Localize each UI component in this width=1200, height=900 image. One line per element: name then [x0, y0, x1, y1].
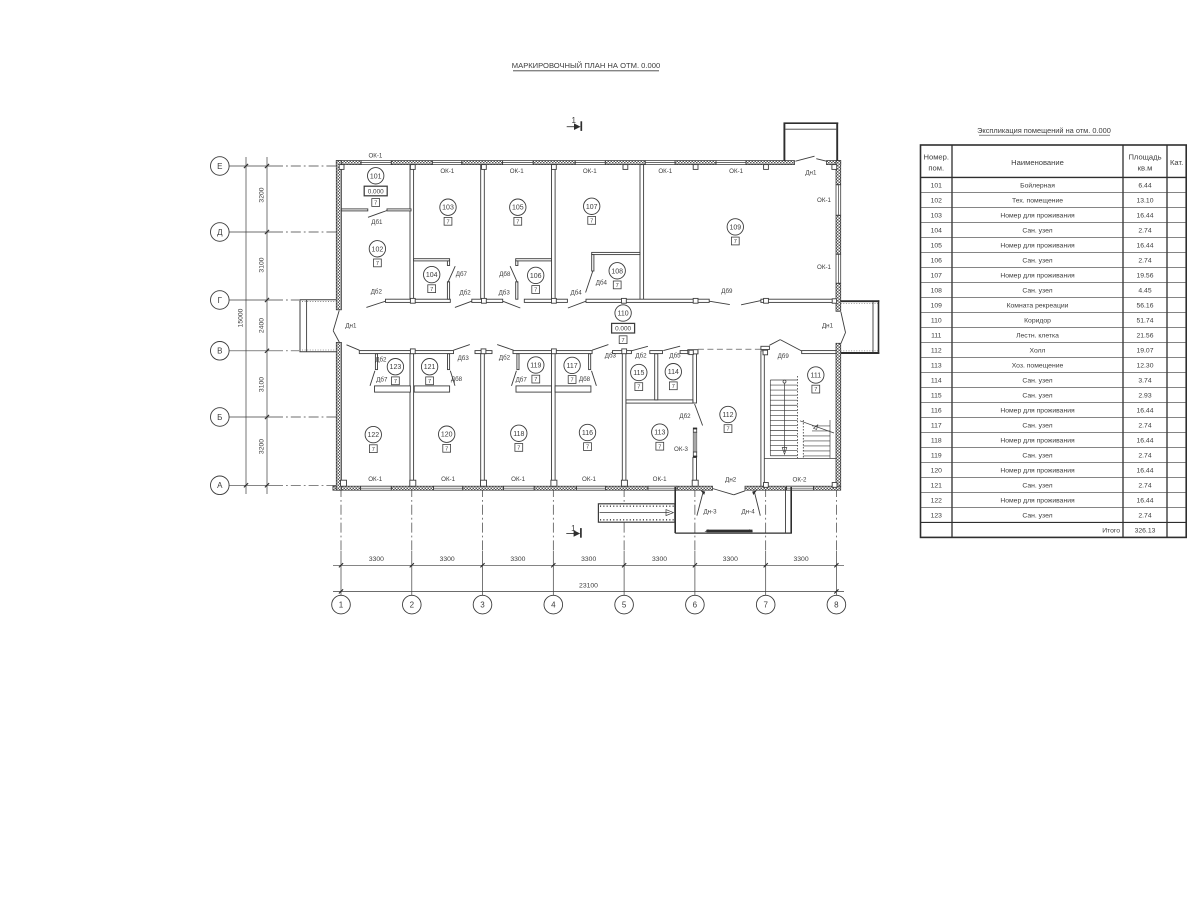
svg-text:7: 7 [726, 427, 729, 433]
svg-text:Номер для проживания: Номер для проживания [1000, 438, 1075, 445]
svg-text:7: 7 [672, 384, 675, 390]
svg-text:16.44: 16.44 [1136, 468, 1153, 475]
svg-text:122: 122 [931, 498, 943, 505]
svg-text:7: 7 [534, 288, 537, 294]
svg-text:Наименование: Наименование [1011, 158, 1064, 167]
svg-text:Б: Б [217, 413, 222, 422]
svg-text:13.10: 13.10 [1136, 198, 1153, 205]
svg-text:пом.: пом. [928, 164, 944, 173]
svg-text:120: 120 [931, 468, 943, 475]
svg-text:2.74: 2.74 [1138, 423, 1151, 430]
svg-text:3100: 3100 [259, 377, 266, 392]
svg-text:Дб2: Дб2 [679, 413, 691, 420]
svg-text:6: 6 [693, 601, 698, 610]
svg-text:23100: 23100 [579, 582, 598, 589]
svg-text:120: 120 [441, 432, 453, 439]
svg-text:110: 110 [931, 318, 942, 325]
svg-text:16.44: 16.44 [1136, 498, 1153, 505]
svg-text:110: 110 [618, 311, 629, 318]
svg-text:Номер.: Номер. [924, 153, 949, 162]
svg-text:ОК-3: ОК-3 [674, 446, 688, 453]
svg-text:Дб2: Дб2 [499, 354, 511, 361]
svg-text:ОК-1: ОК-1 [729, 168, 743, 175]
svg-text:Дн-3: Дн-3 [703, 509, 717, 516]
svg-text:Дб1: Дб1 [371, 219, 383, 226]
svg-text:Сан. узел: Сан. узел [1022, 258, 1052, 265]
svg-text:Номер для проживания: Номер для проживания [1000, 213, 1075, 220]
svg-text:Дб8: Дб8 [499, 271, 511, 278]
svg-text:Тех. помещение: Тех. помещение [1012, 198, 1063, 205]
svg-text:7: 7 [430, 287, 433, 293]
svg-text:Дб4: Дб4 [596, 280, 608, 287]
svg-text:Комната рекреации: Комната рекреации [1007, 303, 1069, 310]
svg-text:105: 105 [931, 243, 943, 250]
svg-text:121: 121 [931, 483, 943, 490]
svg-text:Дб7: Дб7 [516, 377, 528, 384]
svg-text:Дб3: Дб3 [605, 353, 617, 360]
svg-text:122: 122 [367, 432, 379, 439]
svg-text:Сан. узел: Сан. узел [1022, 228, 1052, 235]
svg-text:Номер для проживания: Номер для проживания [1000, 498, 1075, 505]
svg-text:118: 118 [513, 431, 524, 438]
svg-text:ОК-1: ОК-1 [368, 476, 382, 483]
svg-text:51.74: 51.74 [1136, 318, 1153, 325]
svg-text:111: 111 [931, 333, 942, 340]
svg-text:Дб4: Дб4 [571, 290, 583, 297]
svg-text:Сан. узел: Сан. узел [1022, 483, 1052, 490]
svg-text:101: 101 [931, 183, 943, 190]
svg-text:ОК-1: ОК-1 [817, 197, 831, 204]
svg-text:21.56: 21.56 [1136, 333, 1153, 340]
svg-text:2.74: 2.74 [1138, 513, 1151, 520]
svg-text:3200: 3200 [259, 439, 266, 454]
svg-text:0.000: 0.000 [615, 326, 631, 333]
svg-text:7: 7 [586, 445, 589, 451]
svg-text:Дн2: Дн2 [725, 477, 737, 484]
svg-text:115: 115 [931, 393, 942, 400]
svg-text:Итого: Итого [1102, 528, 1120, 535]
svg-text:116: 116 [582, 430, 593, 437]
svg-text:7: 7 [376, 261, 379, 267]
svg-text:7: 7 [374, 201, 377, 207]
svg-text:7: 7 [394, 379, 397, 385]
svg-text:8: 8 [834, 601, 839, 610]
svg-text:103: 103 [442, 205, 454, 212]
svg-text:3300: 3300 [793, 556, 808, 563]
svg-text:Номер для проживания: Номер для проживания [1000, 408, 1075, 415]
svg-text:123: 123 [390, 364, 402, 371]
svg-text:117: 117 [931, 423, 942, 430]
svg-text:123: 123 [931, 513, 943, 520]
svg-text:117: 117 [567, 363, 578, 370]
svg-text:16.44: 16.44 [1136, 408, 1153, 415]
svg-text:121: 121 [424, 364, 436, 371]
svg-text:104: 104 [426, 272, 438, 279]
svg-text:114: 114 [931, 378, 942, 385]
svg-text:Дб8: Дб8 [579, 376, 591, 383]
svg-text:Дб3: Дб3 [458, 355, 470, 362]
svg-text:Холл: Холл [1029, 348, 1045, 355]
svg-text:114: 114 [668, 369, 679, 376]
svg-text:3.74: 3.74 [1138, 378, 1151, 385]
svg-text:105: 105 [512, 205, 524, 212]
svg-text:16.44: 16.44 [1136, 438, 1153, 445]
svg-text:113: 113 [931, 363, 942, 370]
svg-text:Д: Д [217, 228, 223, 237]
svg-text:Номер для проживания: Номер для проживания [1000, 273, 1075, 280]
svg-text:ОК-2: ОК-2 [793, 477, 807, 484]
svg-text:2400: 2400 [259, 318, 266, 333]
svg-text:101: 101 [370, 173, 382, 180]
svg-text:Сан. узел: Сан. узел [1022, 513, 1052, 520]
svg-text:Дб2: Дб2 [635, 353, 647, 360]
svg-text:3300: 3300 [723, 556, 738, 563]
svg-text:16.44: 16.44 [1136, 213, 1153, 220]
svg-text:Дб7: Дб7 [456, 271, 468, 278]
svg-text:2: 2 [410, 601, 415, 610]
svg-text:В: В [217, 347, 222, 356]
svg-text:7: 7 [763, 601, 768, 610]
svg-text:7: 7 [571, 378, 574, 384]
svg-text:Дб8: Дб8 [451, 376, 463, 383]
svg-text:Кат.: Кат. [1170, 158, 1183, 167]
svg-text:ОК-1: ОК-1 [658, 168, 672, 175]
svg-text:Дн1: Дн1 [805, 170, 817, 177]
svg-text:Лестн. клетка: Лестн. клетка [1016, 333, 1059, 340]
svg-text:Сан. узел: Сан. узел [1022, 423, 1052, 430]
svg-text:7: 7 [516, 219, 519, 225]
svg-text:А: А [217, 481, 223, 490]
svg-text:1: 1 [571, 116, 576, 125]
svg-text:119: 119 [530, 363, 541, 370]
svg-text:7: 7 [616, 283, 619, 289]
svg-text:104: 104 [931, 228, 943, 235]
svg-text:ОК-1: ОК-1 [653, 476, 667, 483]
svg-text:7: 7 [517, 446, 520, 452]
svg-text:102: 102 [931, 198, 943, 205]
svg-text:Дн-4: Дн-4 [742, 509, 756, 516]
svg-text:4: 4 [551, 601, 556, 610]
svg-text:Сан. узел: Сан. узел [1022, 393, 1052, 400]
svg-text:3300: 3300 [369, 556, 384, 563]
svg-text:103: 103 [931, 213, 943, 220]
svg-text:Площадь: Площадь [1128, 153, 1161, 162]
svg-text:112: 112 [722, 412, 733, 419]
svg-text:19.07: 19.07 [1136, 348, 1153, 355]
svg-text:Номер для проживания: Номер для проживания [1000, 243, 1075, 250]
svg-text:3200: 3200 [259, 187, 266, 202]
svg-text:1: 1 [339, 601, 344, 610]
svg-text:МАРКИРОВОЧНЫЙ ПЛАН НА ОТМ. 0.0: МАРКИРОВОЧНЫЙ ПЛАН НА ОТМ. 0.000 [512, 61, 660, 70]
svg-text:7: 7 [428, 379, 431, 385]
svg-text:Дн1: Дн1 [345, 323, 357, 330]
svg-text:Сан. узел: Сан. узел [1022, 378, 1052, 385]
svg-text:56.16: 56.16 [1136, 303, 1153, 310]
svg-text:ОК-1: ОК-1 [441, 476, 455, 483]
svg-text:2.74: 2.74 [1138, 228, 1151, 235]
svg-text:Дб7: Дб7 [376, 377, 388, 384]
svg-text:Г: Г [218, 296, 223, 305]
svg-text:108: 108 [611, 268, 623, 275]
svg-text:Дб5: Дб5 [669, 353, 681, 360]
svg-text:116: 116 [931, 408, 942, 415]
svg-text:7: 7 [622, 338, 625, 344]
svg-text:Е: Е [217, 162, 222, 171]
svg-text:107: 107 [586, 204, 598, 211]
svg-text:Дб2: Дб2 [375, 356, 387, 363]
svg-text:7: 7 [372, 447, 375, 453]
svg-text:Дб2: Дб2 [371, 289, 383, 296]
svg-text:Дб9: Дб9 [778, 353, 790, 360]
svg-text:119: 119 [931, 453, 942, 460]
svg-text:0.000: 0.000 [368, 188, 384, 195]
svg-text:ОК-1: ОК-1 [368, 152, 382, 159]
svg-text:7: 7 [814, 387, 817, 393]
svg-text:7: 7 [590, 219, 593, 225]
svg-text:Дн1: Дн1 [822, 323, 834, 330]
svg-text:2.74: 2.74 [1138, 258, 1151, 265]
svg-text:106: 106 [530, 273, 542, 280]
svg-text:ОК-1: ОК-1 [583, 168, 597, 175]
svg-text:Номер для проживания: Номер для проживания [1000, 468, 1075, 475]
svg-text:106: 106 [931, 258, 943, 265]
svg-text:Сан. узел: Сан. узел [1022, 453, 1052, 460]
svg-text:118: 118 [931, 438, 942, 445]
svg-text:109: 109 [931, 303, 943, 310]
svg-text:Дб9: Дб9 [721, 288, 733, 295]
svg-text:7: 7 [445, 446, 448, 452]
svg-text:15000: 15000 [238, 308, 245, 327]
svg-text:Хоз. помещение: Хоз. помещение [1012, 363, 1064, 370]
svg-text:326.13: 326.13 [1135, 528, 1156, 535]
svg-text:7: 7 [658, 444, 661, 450]
svg-text:4.45: 4.45 [1138, 288, 1151, 295]
svg-text:ОК-1: ОК-1 [510, 168, 524, 175]
svg-text:113: 113 [654, 430, 665, 437]
svg-text:3300: 3300 [581, 556, 596, 563]
svg-text:ОК-1: ОК-1 [582, 476, 596, 483]
svg-text:ОК-1: ОК-1 [511, 476, 525, 483]
svg-text:107: 107 [931, 273, 943, 280]
svg-text:16.44: 16.44 [1136, 243, 1153, 250]
svg-text:7: 7 [734, 239, 737, 245]
svg-text:112: 112 [931, 348, 942, 355]
svg-text:Бойлерная: Бойлерная [1020, 182, 1055, 190]
svg-text:102: 102 [372, 246, 384, 253]
svg-text:19.56: 19.56 [1136, 273, 1153, 280]
svg-text:2.74: 2.74 [1138, 483, 1151, 490]
svg-text:108: 108 [931, 288, 943, 295]
svg-text:7: 7 [637, 385, 640, 391]
svg-text:6.44: 6.44 [1138, 183, 1151, 190]
svg-text:115: 115 [633, 370, 644, 377]
svg-text:2.74: 2.74 [1138, 453, 1151, 460]
svg-text:3: 3 [480, 601, 485, 610]
svg-text:Сан. узел: Сан. узел [1022, 288, 1052, 295]
svg-text:7: 7 [534, 377, 537, 383]
svg-text:3100: 3100 [259, 257, 266, 272]
svg-text:7: 7 [446, 219, 449, 225]
svg-text:2.93: 2.93 [1138, 393, 1151, 400]
svg-text:109: 109 [729, 224, 741, 231]
svg-text:3300: 3300 [440, 556, 455, 563]
svg-text:111: 111 [810, 373, 821, 380]
svg-text:3300: 3300 [652, 556, 667, 563]
svg-text:кв.м: кв.м [1138, 164, 1153, 173]
svg-text:Дб2: Дб2 [460, 290, 472, 297]
svg-text:5: 5 [622, 601, 627, 610]
svg-text:3300: 3300 [510, 556, 525, 563]
svg-text:Экспликация помещений на отм.: Экспликация помещений на отм. 0.000 [977, 126, 1111, 135]
svg-text:Дб3: Дб3 [499, 290, 511, 297]
svg-text:Коридор: Коридор [1024, 318, 1051, 325]
svg-text:12.30: 12.30 [1136, 363, 1153, 370]
svg-text:ОК-1: ОК-1 [817, 264, 831, 271]
svg-text:ОК-1: ОК-1 [440, 168, 454, 175]
